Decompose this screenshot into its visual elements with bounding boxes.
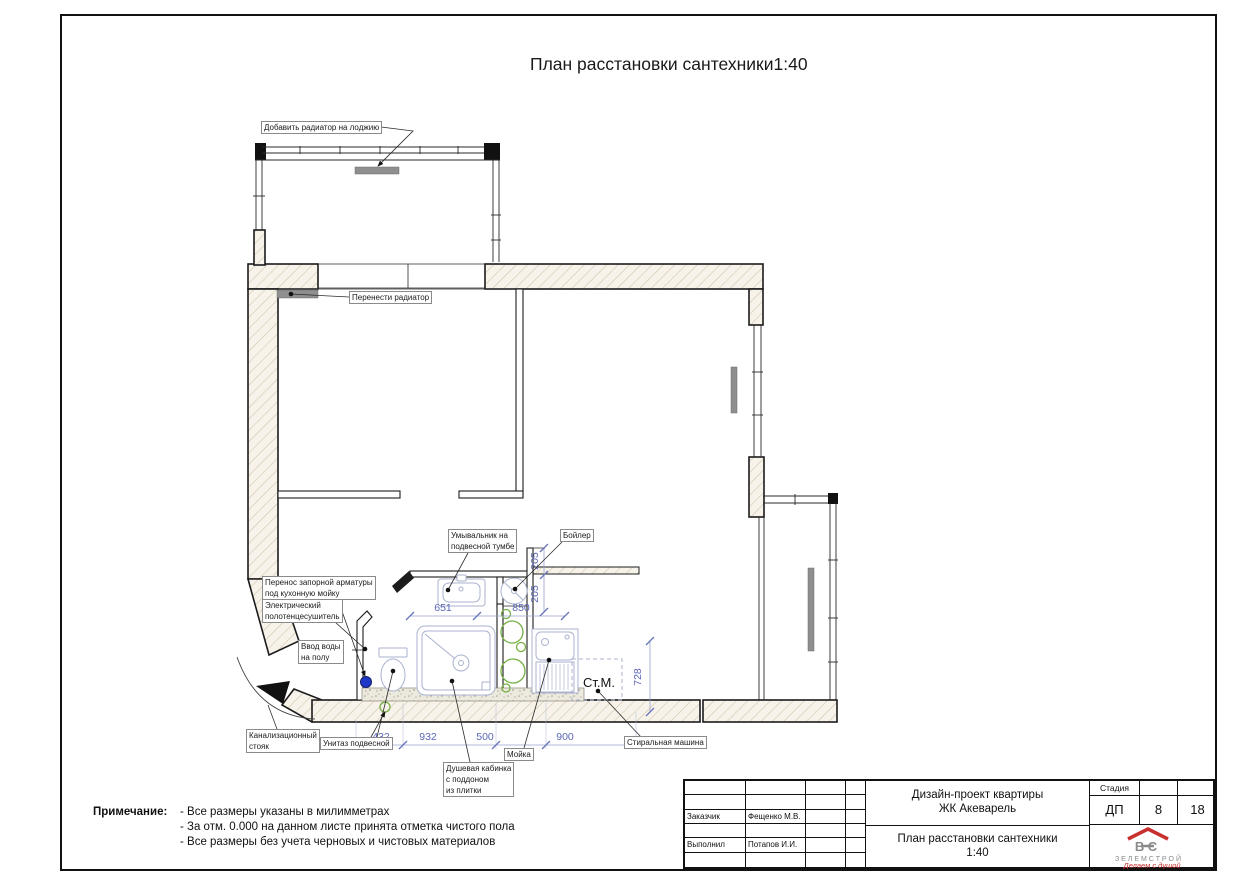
partition-vertical	[516, 289, 523, 497]
partition-horizontal-right	[459, 491, 523, 498]
sheet-number: 8	[1140, 796, 1178, 825]
author-label: Выполнил	[685, 838, 746, 852]
customer-value: Фещенко М.В.	[746, 810, 806, 824]
drawing-sheet: План расстановки сантехники1:40	[0, 0, 1252, 885]
callout-valve: Перенос запорной арматуры под кухонную м…	[262, 576, 376, 600]
sheet-title-line2: 1:40	[866, 846, 1089, 860]
kitchen-sink	[532, 629, 578, 693]
callout-shower: Душевая кабинка с поддоном из плитки	[443, 762, 514, 797]
callout-washing-machine: Стиральная машина	[624, 736, 707, 749]
wall-bottom-right	[703, 700, 837, 722]
dim-651: 651	[434, 602, 452, 614]
notes-label: Примечание:	[93, 805, 167, 820]
wall-right-above-window	[749, 289, 763, 325]
stage-value: ДП	[1090, 796, 1140, 825]
shower-tray	[417, 626, 495, 695]
project-title-line1: Дизайн-проект квартиры	[866, 788, 1089, 802]
dim-205b: 205	[529, 585, 541, 603]
wall-loggia-left-piece	[254, 230, 265, 265]
title-block-stage: Стадия ДП 8 18 ВС З Е Л Е М С Т Р О Й Де…	[1090, 781, 1217, 867]
customer-label: Заказчик	[685, 810, 746, 824]
balcony-corner-post	[828, 493, 838, 504]
logo-graphic: ВС З Е Л Е М С Т Р О Й Делаем с душой	[1090, 825, 1217, 869]
note-line: - За отм. 0.000 на данном листе принята …	[180, 820, 600, 835]
dim-932: 932	[419, 731, 437, 743]
callout-sewer-riser: Канализационный стояк	[246, 729, 320, 753]
dim-900: 900	[556, 731, 574, 743]
dim-500: 500	[476, 731, 494, 743]
loggia-left-post	[255, 143, 266, 160]
title-block-signatures: Заказчик Фещенко М.В. Выполнил Потапов И…	[685, 781, 866, 867]
wall-bottom-left	[312, 700, 700, 722]
callout-kitchen-sink: Мойка	[504, 748, 534, 761]
wall-left	[248, 289, 278, 579]
washing-machine-abbr: Ст.М.	[583, 675, 615, 690]
radiator-loggia	[355, 167, 399, 174]
wall-face-lines	[278, 264, 545, 606]
callout-towel-dryer: Электрический полотенцесушитель	[262, 599, 343, 623]
note-line: - Все размеры указаны в милимметрах	[180, 805, 600, 820]
callout-water-inlet: Ввод воды на полу	[298, 640, 344, 664]
dim-850: 850	[512, 602, 530, 614]
note-line: - Все размеры без учета черновых и чисто…	[180, 835, 600, 850]
callout-basin: Умывальник на подвесной тумбе	[448, 529, 517, 553]
company-logo: ВС З Е Л Е М С Т Р О Й Делаем с душой	[1090, 825, 1217, 869]
author-value: Потапов И.И.	[746, 838, 806, 852]
callout-add-radiator: Добавить радиатор на лоджию	[261, 121, 382, 134]
total-sheets: 18	[1178, 796, 1217, 825]
bathroom-chamfer-wall	[392, 571, 414, 593]
wall-kitchen-stub	[533, 567, 639, 574]
wall-right-pier	[749, 457, 764, 517]
title-block: Заказчик Фещенко М.В. Выполнил Потапов И…	[683, 779, 1215, 869]
wall-top-left-block	[248, 264, 318, 289]
radiator-balcony	[808, 568, 814, 651]
radiator-living	[731, 367, 737, 413]
wall-top-right	[485, 264, 763, 289]
callout-toilet: Унитаз подвесной	[320, 737, 393, 750]
bathroom-top-wall	[410, 571, 533, 577]
dim-205a: 205	[529, 552, 541, 570]
logo-tagline: Делаем с душой	[1122, 861, 1181, 869]
title-block-titles: Дизайн-проект квартиры ЖК Акеварель План…	[866, 781, 1090, 867]
floor-plan: 651 850 205 205 728 432 932 500 900	[0, 0, 1252, 885]
callout-move-radiator: Перенести радиатор	[349, 291, 432, 304]
callout-boiler: Бойлер	[560, 529, 594, 542]
loggia-right-post	[484, 143, 500, 160]
water-inlet-point	[361, 677, 372, 688]
sheet-title-line1: План расстановки сантехники	[866, 832, 1089, 846]
project-title-line2: ЖК Акеварель	[866, 802, 1089, 816]
stage-label: Стадия	[1090, 781, 1140, 796]
logo-roof-icon	[1128, 829, 1168, 839]
dim-728: 728	[632, 668, 644, 686]
partition-horizontal-left	[278, 491, 400, 498]
